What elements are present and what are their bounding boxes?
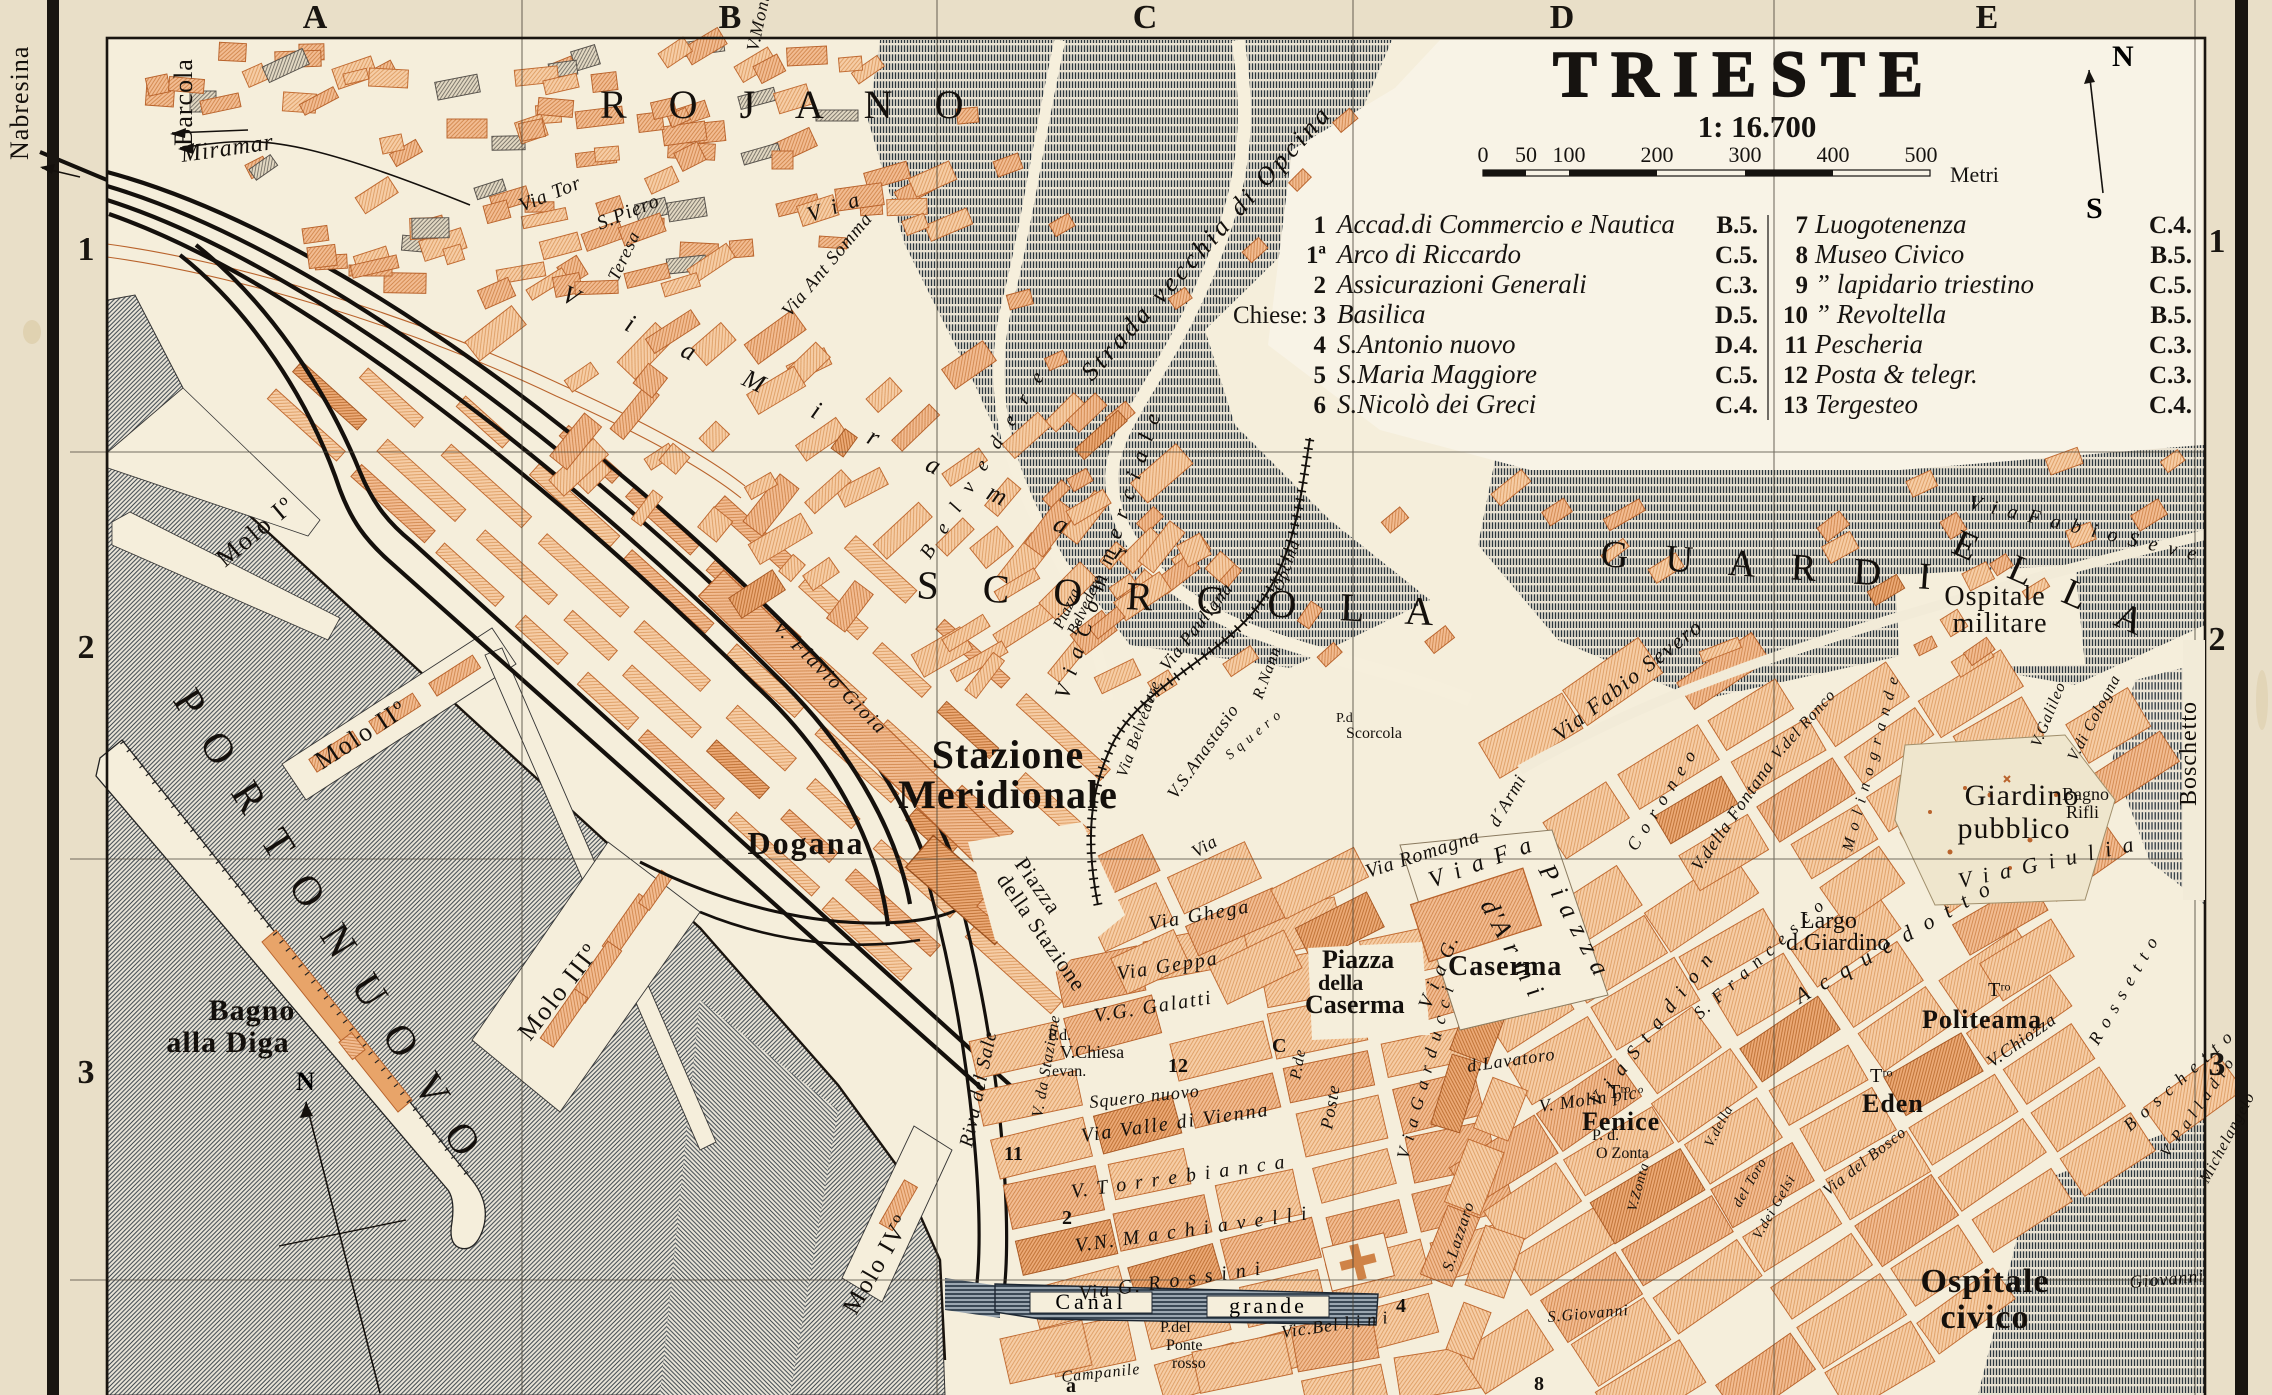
svg-text:evan.: evan.	[1052, 1063, 1086, 1080]
svg-text:C.4.: C.4.	[1715, 392, 1758, 419]
svg-text:8: 8	[1534, 1373, 1544, 1395]
svg-text:200: 200	[1641, 142, 1674, 167]
svg-text:Tergesteo: Tergesteo	[1815, 389, 1918, 419]
svg-text:Accad.di Commercio e Nautica: Accad.di Commercio e Nautica	[1335, 209, 1675, 239]
svg-text:TRIESTE: TRIESTE	[1553, 38, 1937, 111]
svg-text:Assicurazioni Generali: Assicurazioni Generali	[1335, 269, 1587, 299]
svg-text:100: 100	[1553, 142, 1586, 167]
svg-text:1ª: 1ª	[1306, 242, 1327, 269]
svg-text:Chiese:: Chiese:	[1233, 302, 1308, 329]
svg-text:V.Chiesa: V.Chiesa	[1060, 1042, 1124, 1062]
svg-text:B.5.: B.5.	[1716, 212, 1758, 239]
svg-text:12: 12	[1783, 362, 1808, 389]
svg-text:a: a	[1066, 1375, 1076, 1395]
svg-text:9: 9	[1796, 272, 1809, 299]
svg-text:C.5.: C.5.	[2149, 272, 2192, 299]
svg-text:1: 1	[78, 231, 95, 268]
svg-text:1: 1	[2209, 223, 2226, 260]
svg-text:50: 50	[1515, 142, 1537, 167]
svg-text:Posta & telegr.: Posta & telegr.	[1814, 359, 1978, 389]
svg-text:Dogana: Dogana	[748, 825, 865, 861]
svg-text:B.5.: B.5.	[2150, 242, 2192, 269]
svg-text:D.4.: D.4.	[1715, 332, 1758, 359]
svg-text:300: 300	[1729, 142, 1762, 167]
svg-text:Ospitale: Ospitale	[1921, 1263, 2050, 1300]
svg-text:alla Diga: alla Diga	[166, 1026, 289, 1059]
svg-text:2: 2	[1062, 1207, 1072, 1229]
svg-text:0: 0	[1478, 142, 1489, 167]
svg-text:2: 2	[1314, 272, 1327, 299]
svg-text:10: 10	[1783, 302, 1808, 329]
svg-text:Ponte: Ponte	[1166, 1337, 1202, 1354]
svg-text:” lapidario triestino: ” lapidario triestino	[1815, 269, 2034, 299]
svg-text:P. d.: P. d.	[1592, 1127, 1619, 1144]
svg-text:Bagno: Bagno	[2062, 784, 2109, 804]
svg-text:8: 8	[1796, 242, 1809, 269]
svg-text:Luogotenenza: Luogotenenza	[1814, 209, 1967, 239]
svg-text:S.Nicolò dei Greci: S.Nicolò dei Greci	[1337, 389, 1536, 419]
svg-text:Tʳᵒ: Tʳᵒ	[1870, 1065, 1893, 1087]
svg-text:militare: militare	[1952, 608, 2047, 639]
svg-text:N: N	[296, 1067, 315, 1096]
svg-text:13: 13	[1783, 392, 1808, 419]
svg-text:Nabresina: Nabresina	[5, 46, 34, 160]
svg-text:C.3.: C.3.	[1715, 272, 1758, 299]
svg-text:Metri: Metri	[1950, 162, 1999, 187]
svg-text:grande: grande	[1229, 1293, 1307, 1318]
svg-text:Pescheria: Pescheria	[1814, 329, 1923, 359]
svg-text:11: 11	[1004, 1143, 1023, 1165]
svg-text:N: N	[2112, 40, 2134, 73]
svg-text:S.Antonio nuovo: S.Antonio nuovo	[1337, 329, 1515, 359]
svg-text:C: C	[1133, 0, 1158, 36]
svg-text:Eden: Eden	[1862, 1089, 1924, 1118]
svg-text:rosso: rosso	[1172, 1355, 1206, 1372]
svg-text:2: 2	[2209, 621, 2226, 658]
svg-text:C.3.: C.3.	[2149, 362, 2192, 389]
svg-text:5: 5	[1314, 362, 1327, 389]
svg-text:Basilica: Basilica	[1337, 299, 1426, 329]
svg-text:3: 3	[78, 1054, 95, 1091]
svg-text:Meridionale: Meridionale	[898, 772, 1118, 817]
svg-text:Boschetto: Boschetto	[2176, 701, 2202, 806]
svg-text:1: 16.700: 1: 16.700	[1698, 109, 1817, 144]
svg-text:C.3.: C.3.	[2149, 332, 2192, 359]
svg-text:E: E	[1976, 0, 1999, 36]
svg-text:A: A	[303, 0, 328, 36]
svg-text:Caserma: Caserma	[1305, 990, 1405, 1019]
svg-text:400: 400	[1817, 142, 1850, 167]
svg-text:1: 1	[1314, 212, 1327, 239]
svg-text:P.del: P.del	[1160, 1319, 1191, 1336]
svg-text:Bagno: Bagno	[209, 994, 296, 1027]
svg-text:Rifli: Rifli	[2066, 802, 2099, 822]
svg-text:P.d: P.d	[1336, 711, 1353, 726]
svg-text:7: 7	[1796, 212, 1809, 239]
svg-text:500: 500	[1905, 142, 1938, 167]
svg-text:D: D	[1550, 0, 1575, 36]
svg-text:11: 11	[1784, 332, 1808, 359]
svg-text:C: C	[1272, 1035, 1286, 1057]
svg-text:B.5.: B.5.	[2150, 302, 2192, 329]
svg-text:6: 6	[1314, 392, 1327, 419]
svg-text:” Revoltella: ” Revoltella	[1815, 299, 1946, 329]
svg-text:12: 12	[1168, 1055, 1188, 1077]
svg-text:pubblico: pubblico	[1958, 812, 2071, 845]
svg-text:Scorcola: Scorcola	[1346, 725, 1402, 742]
svg-text:3: 3	[1314, 302, 1327, 329]
svg-text:R O J A N O: R O J A N O	[600, 82, 979, 127]
svg-text:C.4.: C.4.	[2149, 212, 2192, 239]
svg-text:4: 4	[1396, 1295, 1406, 1317]
svg-text:Stazione: Stazione	[932, 732, 1084, 777]
svg-text:S: S	[2086, 192, 2103, 225]
svg-text:B: B	[719, 0, 742, 36]
svg-text:O Zonta: O Zonta	[1596, 1145, 1649, 1162]
svg-text:Arco di Riccardo: Arco di Riccardo	[1335, 239, 1521, 269]
svg-text:Tʳᵒ: Tʳᵒ	[1988, 979, 2011, 1001]
svg-text:S.Maria Maggiore: S.Maria Maggiore	[1337, 359, 1537, 389]
svg-text:D.5.: D.5.	[1715, 302, 1758, 329]
svg-text:C.5.: C.5.	[1715, 362, 1758, 389]
svg-text:C.4.: C.4.	[2149, 392, 2192, 419]
svg-text:4: 4	[1314, 332, 1327, 359]
svg-text:Museo Civico: Museo Civico	[1814, 239, 1964, 269]
svg-text:C.5.: C.5.	[1715, 242, 1758, 269]
svg-text:civico: civico	[1940, 1299, 2029, 1336]
svg-text:2: 2	[78, 629, 95, 666]
